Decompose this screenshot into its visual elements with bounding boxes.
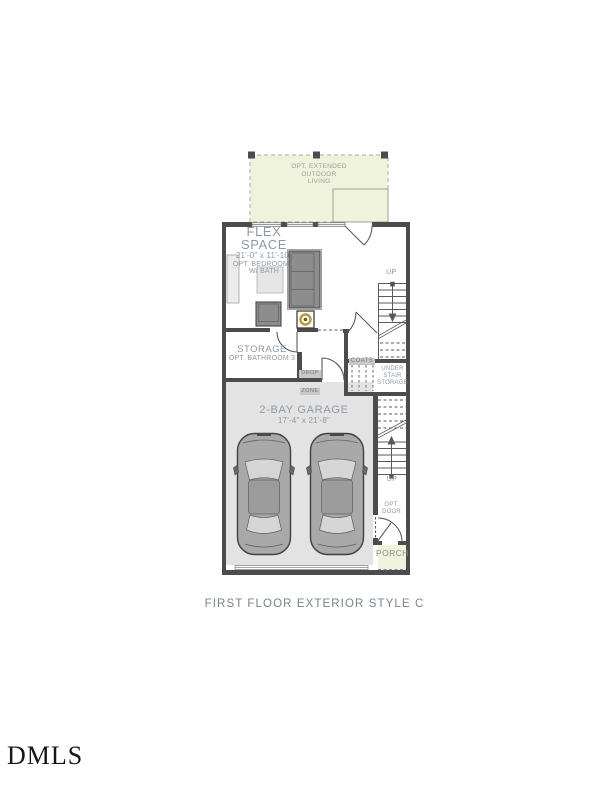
opt-door-label: OPT. DOOR xyxy=(378,502,405,516)
post-icon xyxy=(313,152,320,159)
up-label-top: UP xyxy=(379,269,404,277)
car-top-view-icon xyxy=(234,433,295,555)
stairs-upper xyxy=(378,282,406,359)
floor-plan-sheet: OPT. EXTENDED OUTDOOR LIVING FLEX SPACE … xyxy=(0,0,609,795)
garage-label: 2-BAY GARAGE 17'-4" x 21'-8" xyxy=(244,404,364,426)
side-table-icon xyxy=(297,311,314,328)
porch-label: PORCH xyxy=(376,549,408,558)
post-icon xyxy=(248,152,255,159)
chair-icon xyxy=(256,302,281,326)
dmls-watermark: DMLS xyxy=(7,741,83,771)
drop-zone-label: DROP ZONE xyxy=(299,361,321,396)
under-stair-storage-label: UNDER STAIR STORAGE xyxy=(377,366,408,388)
outdoor-living-label: OPT. EXTENDED OUTDOOR LIVING xyxy=(250,163,388,186)
flex-space-label: FLEX SPACE 21'-0" x 11'-10" OPT. BEDROOM… xyxy=(224,226,304,276)
floor-plan-drawing xyxy=(0,0,609,795)
storage-label: STORAGE OPT. BATHROOM 3 xyxy=(224,345,300,363)
post-icon xyxy=(381,152,388,159)
stairs-lower xyxy=(378,400,406,478)
garage-door-icon xyxy=(235,566,368,570)
car-top-view-icon xyxy=(307,433,368,555)
plan-caption: FIRST FLOOR EXTERIOR STYLE C xyxy=(10,598,609,610)
up-label-bottom: UP xyxy=(380,476,404,484)
coats-label: COATS xyxy=(347,349,377,367)
